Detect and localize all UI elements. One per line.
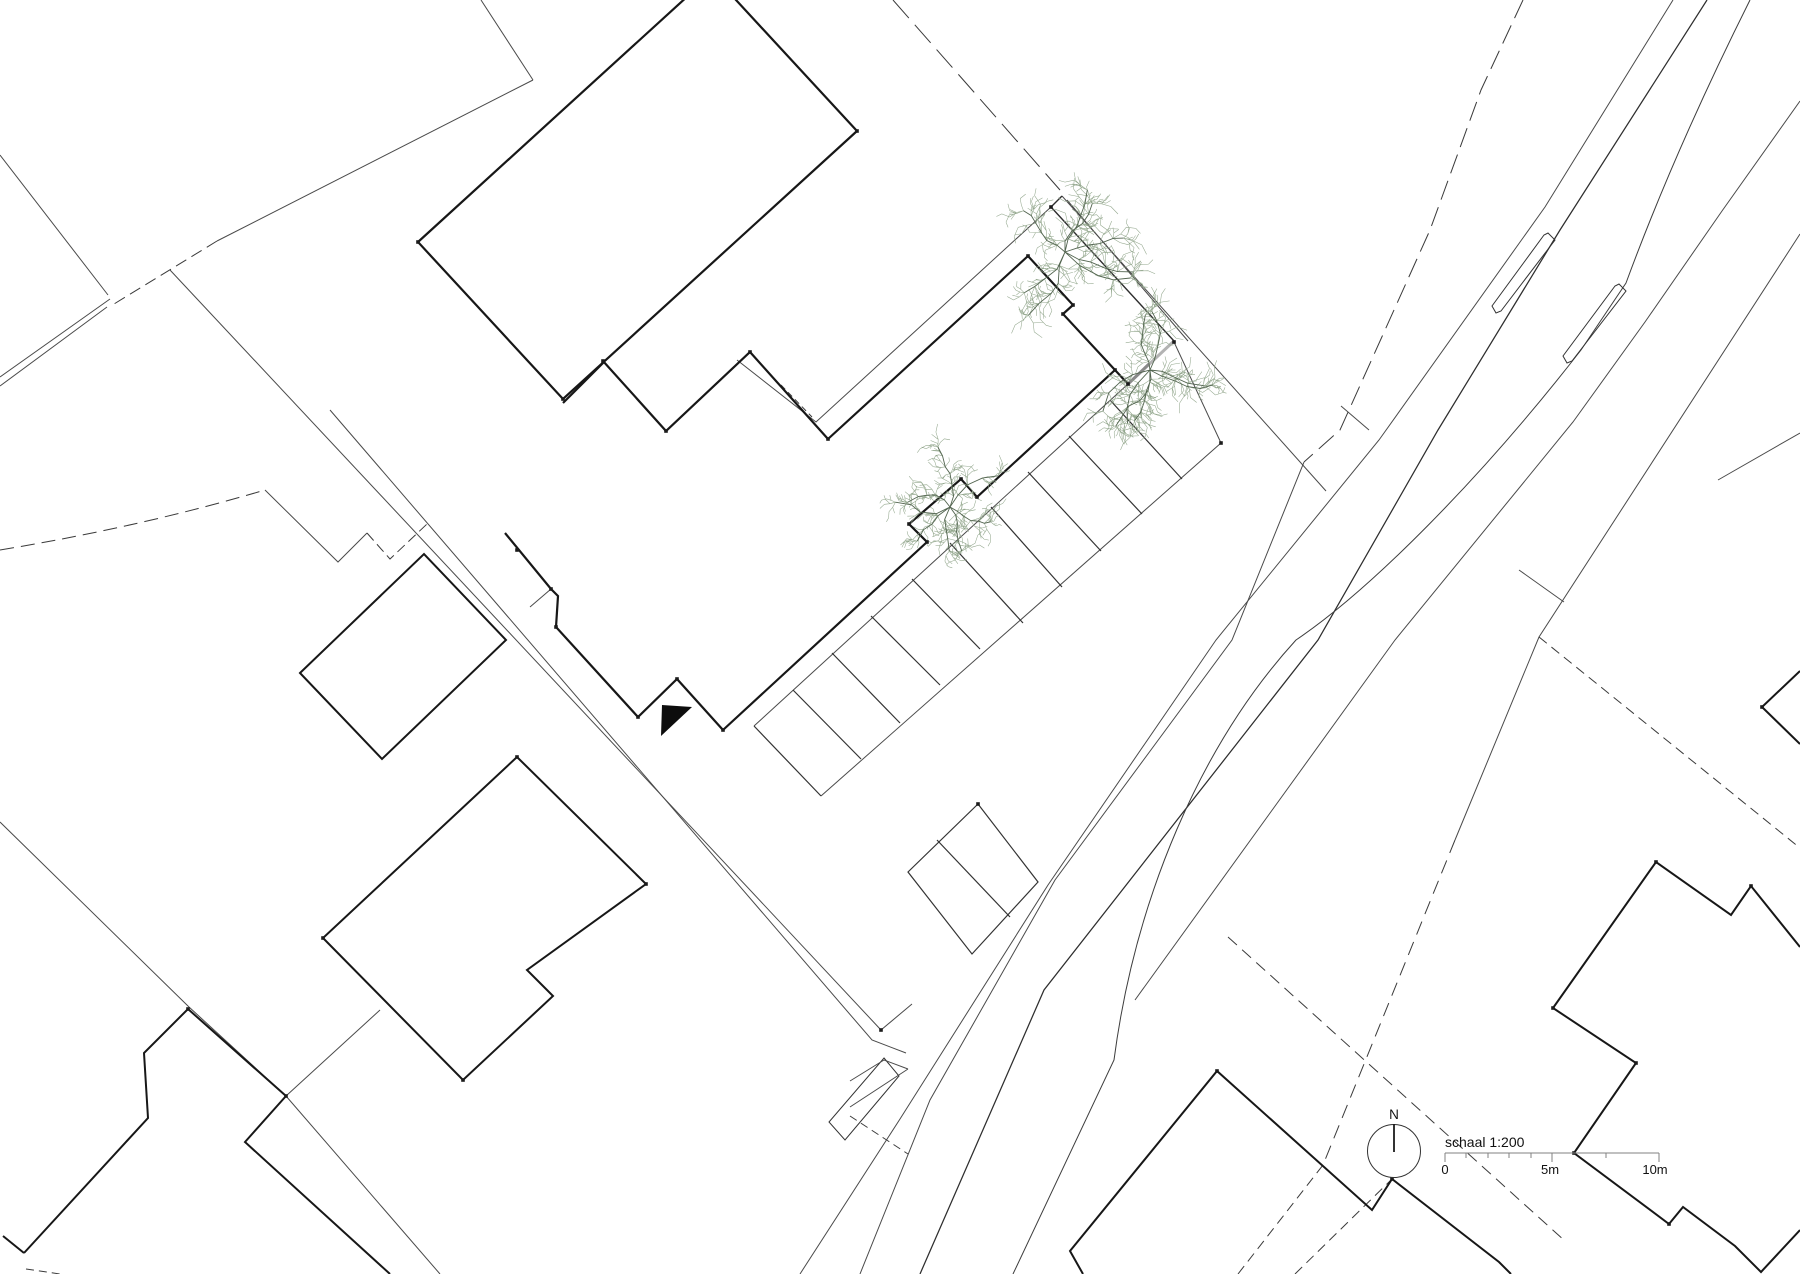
svg-text:5m: 5m — [1541, 1162, 1559, 1177]
svg-text:N: N — [1389, 1107, 1399, 1122]
svg-text:schaal 1:200: schaal 1:200 — [1445, 1134, 1525, 1150]
svg-text:0: 0 — [1441, 1162, 1448, 1177]
svg-text:10m: 10m — [1642, 1162, 1667, 1177]
